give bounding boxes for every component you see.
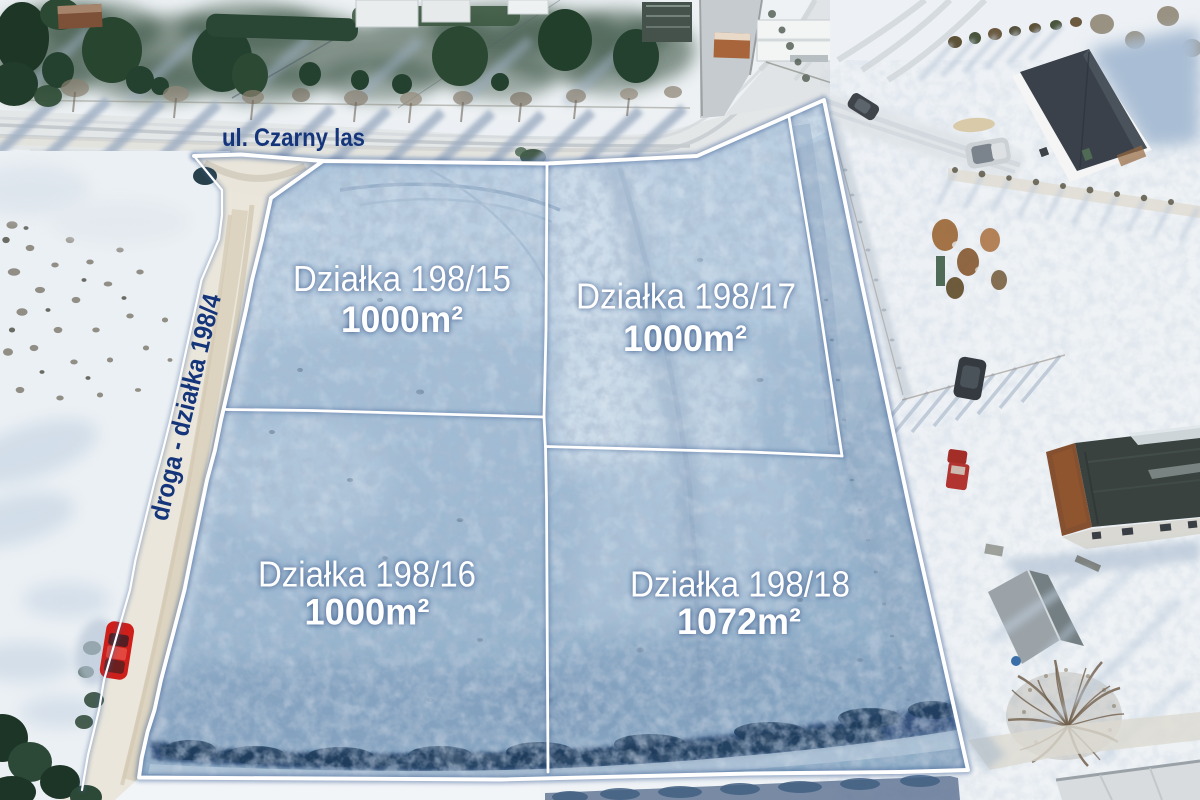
- svg-text:Działka 198/17: Działka 198/17: [576, 276, 796, 317]
- svg-text:1000m²: 1000m²: [305, 592, 430, 633]
- svg-text:ul. Czarny las: ul. Czarny las: [222, 124, 365, 152]
- svg-text:1072m²: 1072m²: [677, 601, 801, 642]
- svg-text:1000m²: 1000m²: [623, 318, 747, 359]
- svg-text:1000m²: 1000m²: [341, 299, 463, 340]
- svg-text:Działka 198/15: Działka 198/15: [293, 258, 511, 299]
- svg-text:Działka 198/18: Działka 198/18: [630, 564, 850, 605]
- svg-text:Działka 198/16: Działka 198/16: [258, 554, 476, 595]
